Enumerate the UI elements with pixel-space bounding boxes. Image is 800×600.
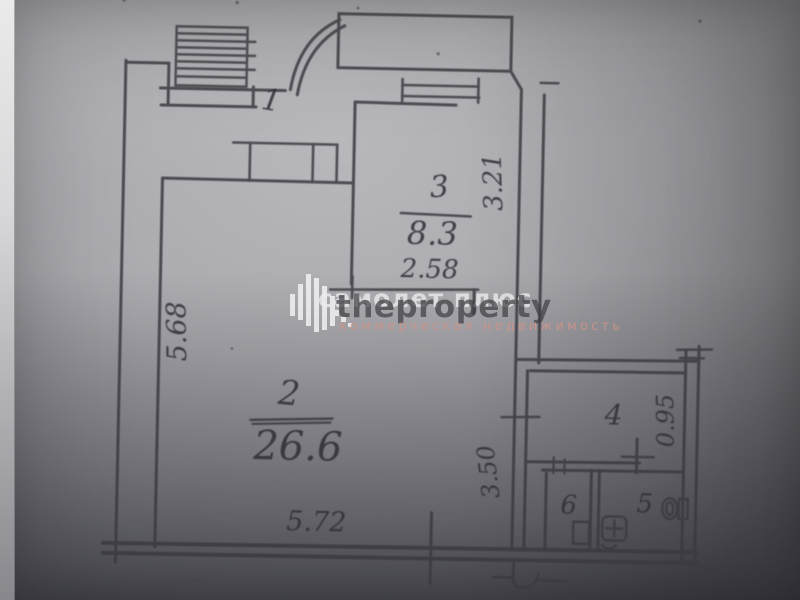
room-4-label: 4 xyxy=(604,401,622,429)
dim-room3-height: 3.21 xyxy=(480,153,508,212)
window-room3 xyxy=(402,77,479,103)
dim-room3-width: 2.58 xyxy=(400,256,458,283)
left-wall xyxy=(115,60,126,562)
sink-icon xyxy=(602,516,627,548)
squiggle-mark xyxy=(492,560,566,589)
dim-hall-width: 0.95 xyxy=(653,394,678,448)
dim-hall-height: 3.50 xyxy=(473,444,503,500)
bottom-wall-inner xyxy=(103,551,697,565)
room-2-area: 26.6 xyxy=(253,426,343,468)
floorplan-drawing xyxy=(0,0,800,600)
dim-bottom-width: 5.72 xyxy=(286,508,347,536)
cabinet-box xyxy=(573,522,589,544)
room-5-label: 5 xyxy=(636,491,653,517)
window-room2 xyxy=(232,142,337,182)
stairs-hatch-icon xyxy=(175,26,255,87)
dim-left-height: 5.68 xyxy=(163,301,191,361)
curved-wall xyxy=(290,19,339,91)
paper-edge xyxy=(0,0,15,600)
room-3-label: 3 xyxy=(429,172,450,203)
room-2-label: 2 xyxy=(277,376,302,412)
floorplan-photo: 1 2 26.6 3 8.3 4 5 6 5.68 3.21 2.58 3.50… xyxy=(0,0,800,600)
floorplan: 1 2 26.6 3 8.3 4 5 6 5.68 3.21 2.58 3.50… xyxy=(0,0,800,600)
room-6-label: 6 xyxy=(560,492,577,518)
room-3-area: 8.3 xyxy=(407,217,459,250)
balcony-outline xyxy=(338,14,512,72)
